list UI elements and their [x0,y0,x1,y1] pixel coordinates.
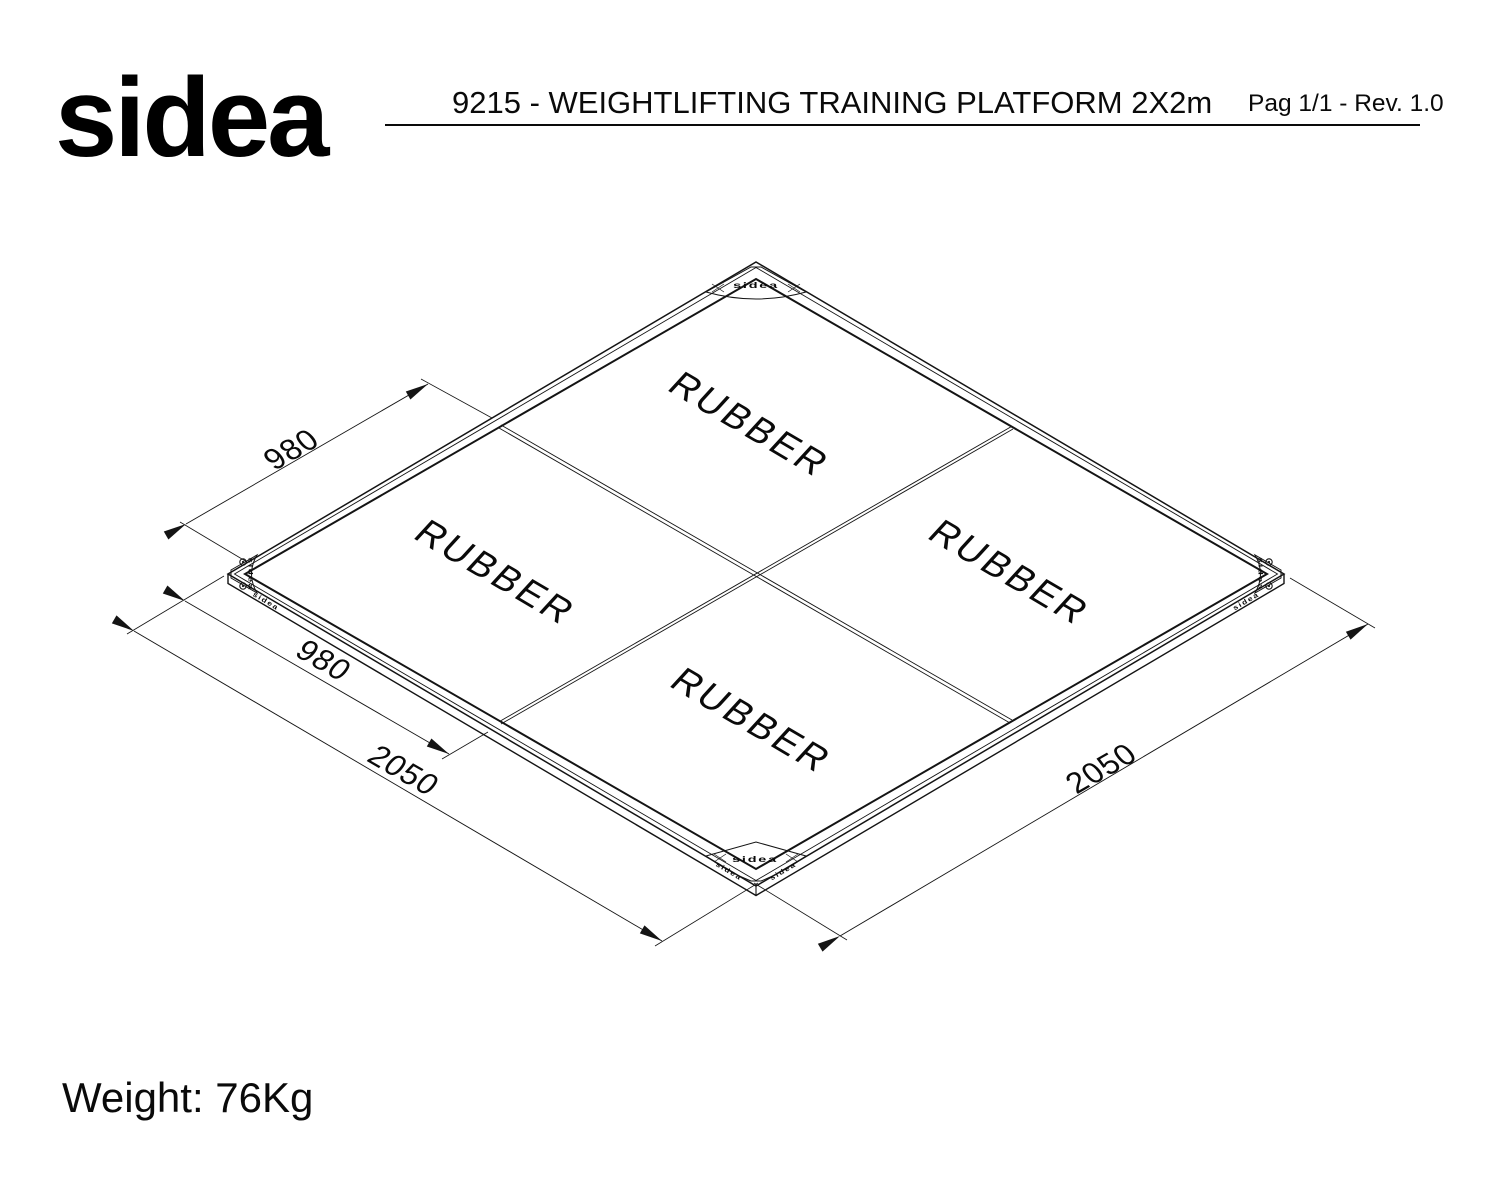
corner-brand-mark: sidea [1257,557,1265,590]
panel-seams [499,425,1013,724]
corner-brand-mark: sidea [1231,590,1260,612]
panel-label-bottom: RUBBER [662,660,842,780]
technical-drawing: sidea sidea sidea sidea sidea sidea side… [0,0,1500,1200]
panel-label-right: RUBBER [920,512,1100,632]
dimension-value-2050-right: 2050 [1058,737,1144,800]
corner-brand-mark: sidea [733,280,779,290]
weight-note: Weight: 76Kg [62,1077,313,1119]
dimension-line-980-left [185,601,449,754]
rubber-panel-labels: RUBBER RUBBER RUBBER RUBBER [406,364,1100,780]
dimension-value-2050-left: 2050 [361,739,447,802]
corner-brand-mark: sidea [247,557,255,590]
panel-label-left: RUBBER [406,512,586,632]
corner-plate-left: sidea sidea [231,555,281,612]
corner-brand-mark: sidea [732,854,778,864]
corner-brand-mark: sidea [251,590,280,612]
dimension-value-980-top: 980 [256,422,326,476]
corner-plate-right: sidea sidea [1231,555,1281,612]
panel-label-top: RUBBER [660,364,840,484]
